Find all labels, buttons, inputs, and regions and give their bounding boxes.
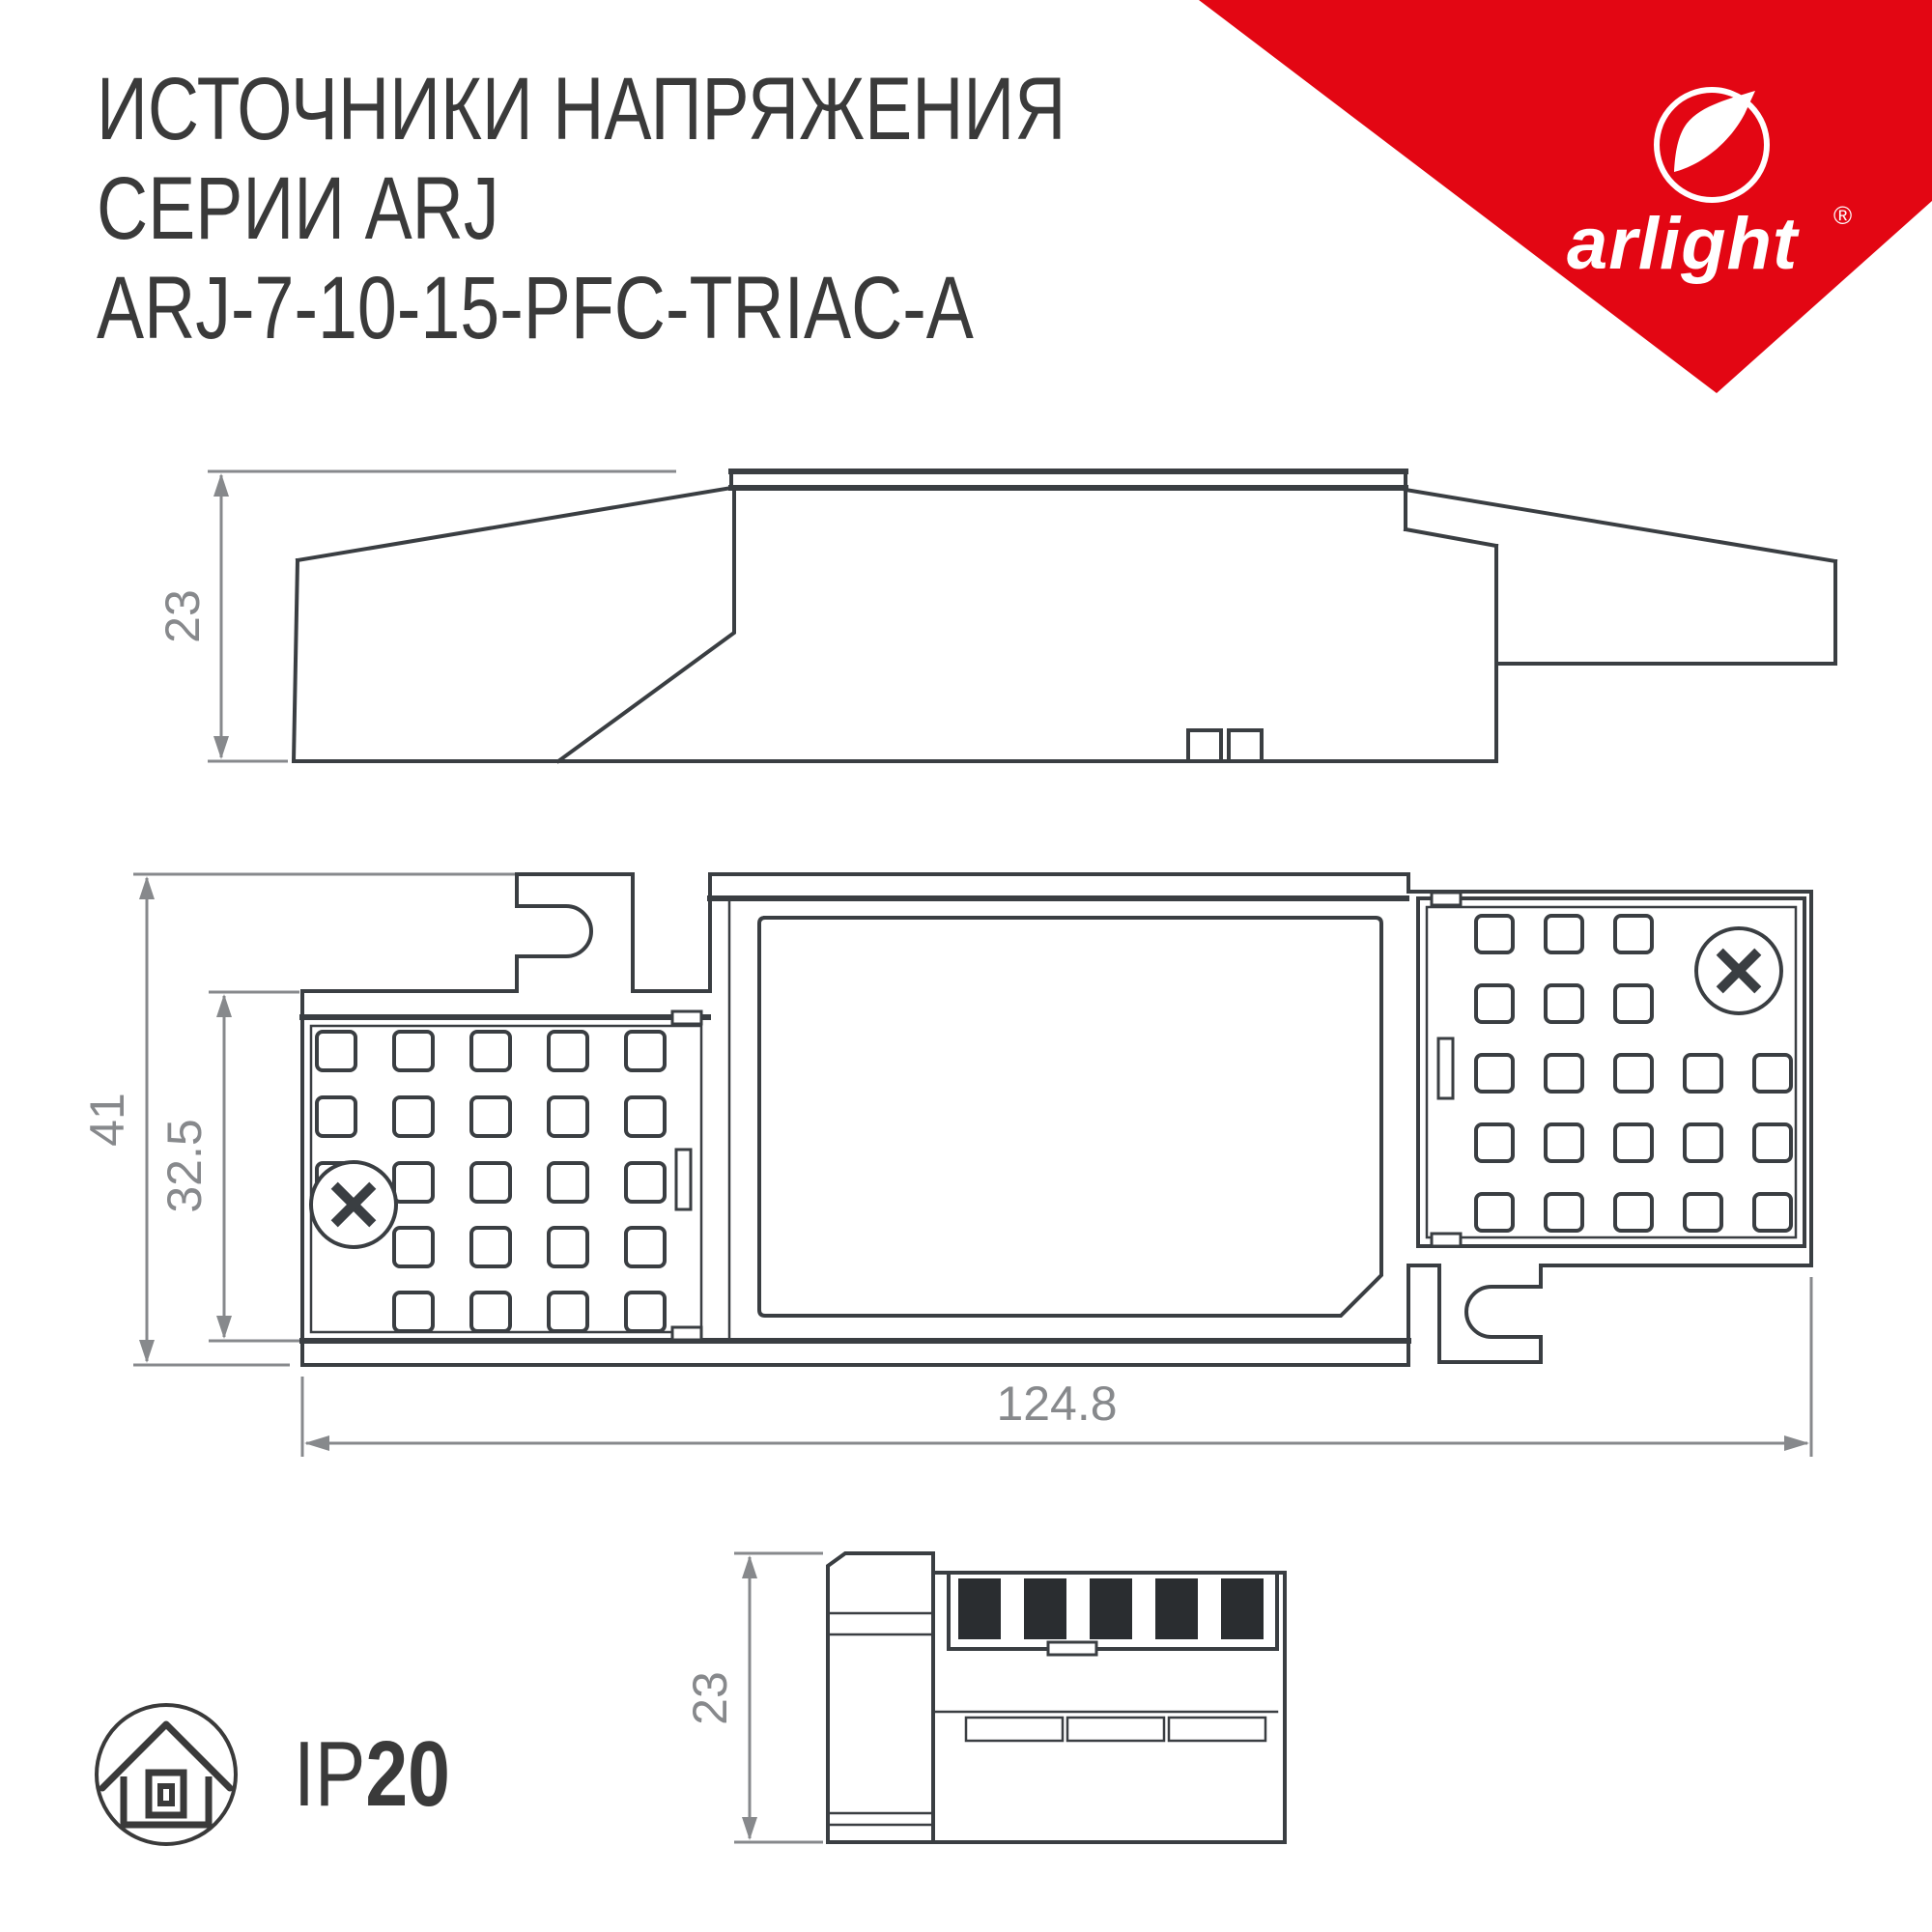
- length-label: 124.8: [996, 1377, 1117, 1431]
- side-height-label: 23: [156, 589, 210, 643]
- top-view-drawing: 41 32.5 124.8: [80, 874, 1811, 1457]
- side-foot-block: [1229, 730, 1262, 761]
- datasheet-page: ИСТОЧНИКИ НАПРЯЖЕНИЯ СЕРИИ ARJ ARJ-7-10-…: [0, 0, 1932, 1932]
- body-width-dimension: 32.5: [157, 992, 299, 1341]
- inner-cavity-line: [558, 488, 734, 761]
- ip-prefix: IP: [294, 1722, 365, 1826]
- side-foot-block: [1188, 730, 1221, 761]
- ip-rating-text: IP20: [294, 1721, 450, 1828]
- registered-mark: ®: [1833, 201, 1852, 230]
- brand-corner: arlight ®: [1199, 0, 1932, 393]
- end-height-label: 23: [683, 1671, 737, 1725]
- side-height-dimension: 23: [156, 471, 676, 761]
- ip-value: 20: [365, 1722, 450, 1826]
- terminal-stripes: [958, 1578, 1264, 1639]
- side-view-drawing: 23: [156, 471, 1835, 761]
- red-triangle: [1199, 0, 1932, 393]
- mount-slot-top: [517, 906, 591, 956]
- ip20-house-icon: [89, 1697, 243, 1852]
- arlight-logo-text: arlight: [1567, 203, 1800, 285]
- end-height-dimension: 23: [683, 1553, 823, 1842]
- screw-left-icon: [311, 1162, 396, 1247]
- end-view-drawing: 23: [683, 1553, 1285, 1842]
- label-area: [759, 918, 1381, 1316]
- technical-drawing-canvas: arlight ® 23: [0, 0, 1932, 1932]
- overall-width-label: 41: [80, 1093, 134, 1147]
- body-width-label: 32.5: [157, 1119, 212, 1212]
- mount-slot-bottom: [1466, 1287, 1541, 1337]
- ip-rating-badge: IP20: [89, 1697, 484, 1852]
- screw-right-icon: [1696, 928, 1781, 1013]
